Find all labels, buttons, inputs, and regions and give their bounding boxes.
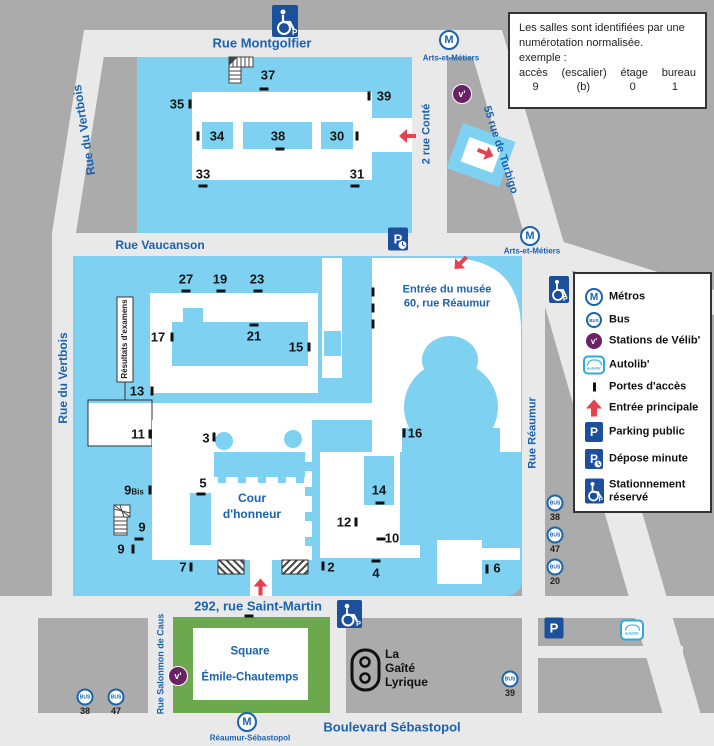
svg-text:P: P <box>563 296 568 303</box>
square-emile-chautemps <box>173 617 330 713</box>
entrance-arrow-icon <box>586 400 602 417</box>
access-number-31: 31 <box>350 167 364 182</box>
access-number-37: 37 <box>261 68 275 83</box>
legend-row-metros: M Métros <box>575 286 710 308</box>
legend-row-velib: v' Stations de Vélib' <box>575 330 710 352</box>
handicap-parking-icon: P <box>337 600 362 628</box>
parking-public-icon: P <box>545 618 564 639</box>
north-building <box>137 57 412 233</box>
street-label-salomon-de-caus: Rue Salonmon de Caus <box>157 614 166 715</box>
legend-row-portes: Portes d'accès <box>575 376 710 398</box>
bus-line-number: 38 <box>80 706 90 716</box>
info-line-2: numérotation normalisée. <box>519 36 696 51</box>
musee-entrance-label-2: 60, rue Réaumur <box>404 299 490 310</box>
legend-row-bus: BUS Bus <box>575 309 710 331</box>
access-number-4: 4 <box>372 566 379 581</box>
autolib-station-icon: autolib' <box>620 620 644 641</box>
gaite-lyrique-label: La Gaîté Lyrique <box>385 648 428 689</box>
street-label-reaumur: Rue Réaumur <box>528 397 539 469</box>
access-number-2: 2 <box>327 560 334 575</box>
access-number-33: 33 <box>196 167 210 182</box>
access-number-13: 13 <box>130 384 144 399</box>
metro-icon: M <box>520 226 540 246</box>
map-legend: M Métros BUS Bus v' Stations de Vélib' a… <box>573 272 712 513</box>
info-columns: accès (escalier) étage bureau <box>519 66 696 81</box>
access-number-27: 27 <box>179 272 193 287</box>
square-label-1: Square <box>231 646 270 658</box>
access-number-39: 39 <box>377 89 391 104</box>
access-number-12: 12 <box>337 515 351 530</box>
bus-icon: BUS <box>586 312 602 328</box>
room-numbering-info-box: Les salles sont identifiées par une numé… <box>508 12 707 109</box>
bus-icon: BUS <box>77 689 94 706</box>
clock-icon <box>398 241 407 250</box>
legend-row-autolib: autolib' Autolib' <box>575 354 710 376</box>
legend-row-entree: Entrée principale <box>575 397 710 419</box>
campus-map: Rue Montgolfier Rue du Vertbois Rue du V… <box>0 0 714 746</box>
svg-text:P: P <box>356 619 361 628</box>
bus-icon: BUS <box>502 671 519 688</box>
legend-row-stationnement: P Stationnementréservé <box>575 476 710 506</box>
legend-stationnement-label: Stationnementréservé <box>609 478 685 503</box>
bus-icon: BUS <box>547 495 564 512</box>
access-number-9bis: 9Bis <box>124 483 144 498</box>
handicap-parking-icon: P <box>272 5 298 37</box>
street-label-montgolfier: Rue Montgolfier <box>213 37 312 50</box>
metro-icon: M <box>585 288 603 306</box>
musee-entrance-label-1: Entrée du musée <box>403 285 492 296</box>
access-number-30: 30 <box>330 129 344 144</box>
bus-icon: BUS <box>108 689 125 706</box>
bus-line-number: 38 <box>550 512 560 522</box>
cour-honneur-label-1: Cour <box>238 492 266 504</box>
access-number-38: 38 <box>271 129 285 144</box>
access-number-11: 11 <box>131 427 145 442</box>
access-number-16: 16 <box>408 426 422 441</box>
info-line-1: Les salles sont identifiées par une <box>519 21 696 36</box>
velib-station-icon: v' <box>452 84 472 104</box>
clock-icon <box>594 460 602 468</box>
info-line-3: exemple : <box>519 51 696 66</box>
access-number-3: 3 <box>202 431 209 446</box>
handicap-parking-icon: P <box>549 276 569 303</box>
bus-line-number: 47 <box>111 706 121 716</box>
bus-line-number: 20 <box>550 576 560 586</box>
access-number-5: 5 <box>199 476 206 491</box>
metro-station-label: Réaumur-Sébastopol <box>210 734 290 743</box>
street-label-vaucanson: Rue Vaucanson <box>115 239 204 251</box>
metro-station-label: Arts-et-Métiers <box>423 54 479 63</box>
access-number-19: 19 <box>213 272 227 287</box>
metro-station-label: Arts-et-Métiers <box>504 247 560 256</box>
bus-line-number: 39 <box>505 688 515 698</box>
access-number-9a: 9 <box>138 520 145 535</box>
street-label-vertbois-lower: Rue du Vertbois <box>57 332 69 423</box>
svg-text:P: P <box>292 28 298 37</box>
velib-station-icon: v' <box>586 333 602 349</box>
access-number-21: 21 <box>247 329 261 344</box>
depose-minute-icon: P <box>388 228 408 251</box>
svg-text:P: P <box>598 497 603 504</box>
access-number-9b: 9 <box>117 542 124 557</box>
access-door-icon <box>593 383 596 392</box>
bus-icon: BUS <box>547 559 564 576</box>
metro-icon: M <box>439 30 459 50</box>
cour-honneur-label-2: d'honneur <box>223 508 281 520</box>
access-number-15: 15 <box>289 340 303 355</box>
square-label-2: Émile-Chautemps <box>201 672 298 684</box>
resultats-examens-label: Résultats d'examens <box>121 299 129 378</box>
street-label-saint-martin: 292, rue Saint-Martin <box>194 600 322 613</box>
street-label-conte: 2 rue Conté <box>422 104 433 165</box>
access-number-34: 34 <box>210 129 224 144</box>
legend-row-depose: P Dépose minute <box>575 448 710 470</box>
access-number-23: 23 <box>250 272 264 287</box>
velib-station-icon: v' <box>168 666 188 686</box>
info-values: 9 (b) 0 1 <box>519 80 696 95</box>
legend-row-parking: P Parking public <box>575 421 710 443</box>
bus-icon: BUS <box>547 527 564 544</box>
access-number-6: 6 <box>493 561 500 576</box>
parking-public-icon: P <box>585 422 603 442</box>
access-number-7: 7 <box>179 560 186 575</box>
metro-icon: M <box>237 712 257 732</box>
access-number-14: 14 <box>372 483 386 498</box>
handicap-parking-icon: P <box>585 479 604 504</box>
depose-minute-icon: P <box>585 449 603 469</box>
street-label-sebastopol: Boulevard Sébastopol <box>323 721 460 734</box>
access-number-35: 35 <box>170 97 184 112</box>
bus-line-number: 47 <box>550 544 560 554</box>
access-number-10: 10 <box>385 531 399 546</box>
autolib-station-icon: autolib' <box>583 356 605 375</box>
access-number-17: 17 <box>151 330 165 345</box>
